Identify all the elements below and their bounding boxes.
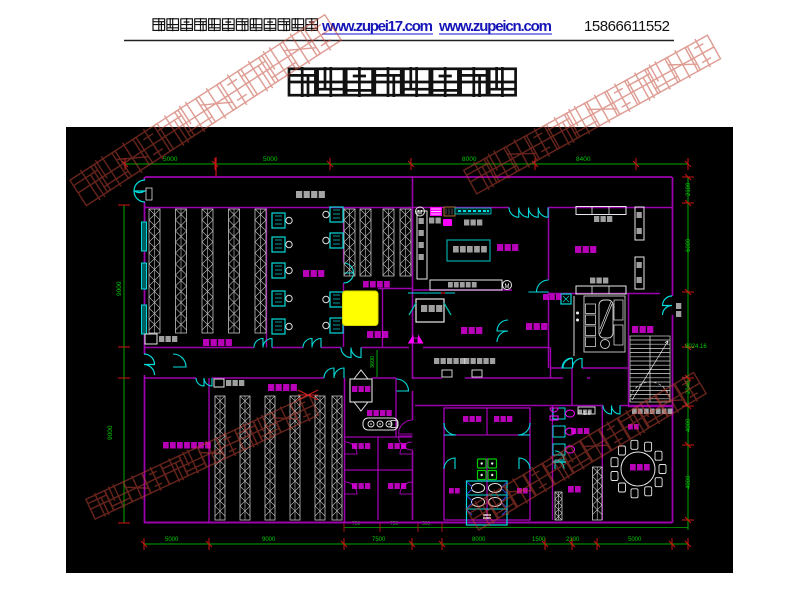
svg-text:2100: 2100: [686, 182, 692, 196]
svg-text:5000: 5000: [163, 156, 178, 163]
svg-text:M: M: [505, 284, 510, 290]
svg-text:6000: 6000: [686, 238, 692, 252]
svg-text:9000: 9000: [107, 425, 114, 440]
svg-text:8000: 8000: [472, 537, 486, 543]
svg-text:8000: 8000: [462, 156, 477, 163]
svg-text:4000: 4000: [686, 418, 692, 432]
svg-text:5000: 5000: [628, 537, 642, 543]
svg-text:4000: 4000: [686, 475, 692, 489]
svg-text:8400: 8400: [576, 156, 591, 163]
svg-text:7500: 7500: [372, 537, 386, 543]
svg-text:15866611552: 15866611552: [584, 18, 670, 35]
svg-text:8024.16: 8024.16: [685, 344, 707, 350]
svg-text:3600: 3600: [370, 356, 376, 368]
svg-text:2100: 2100: [566, 537, 580, 543]
svg-text:1500: 1500: [532, 537, 546, 543]
svg-text:M: M: [418, 211, 423, 217]
svg-text:www.zupei17.com: www.zupei17.com: [321, 18, 433, 35]
svg-text:5000: 5000: [165, 537, 179, 543]
svg-text:www.zupeicn.com: www.zupeicn.com: [438, 18, 552, 35]
svg-text:9000: 9000: [262, 537, 276, 543]
svg-text:5000: 5000: [263, 156, 278, 163]
svg-text:1.5: 1.5: [583, 411, 591, 417]
svg-text:9000: 9000: [116, 281, 123, 296]
